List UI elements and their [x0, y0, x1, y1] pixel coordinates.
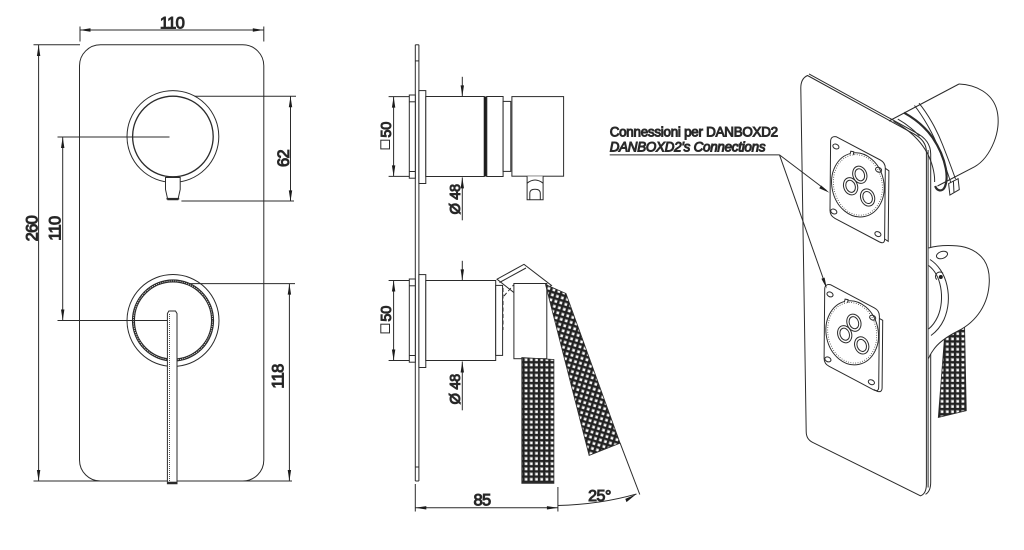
svg-text:118: 118 [270, 364, 288, 389]
svg-text:62: 62 [275, 150, 293, 167]
svg-text:25°: 25° [588, 488, 611, 505]
svg-text:Ø 48: Ø 48 [448, 184, 464, 214]
svg-text:85: 85 [474, 491, 491, 509]
svg-text:50: 50 [379, 306, 395, 322]
svg-text:110: 110 [160, 14, 185, 32]
svg-text:50: 50 [379, 122, 395, 138]
svg-text:260: 260 [24, 215, 42, 241]
svg-text:Ø 48: Ø 48 [448, 374, 464, 404]
svg-text:110: 110 [46, 216, 64, 241]
svg-text:Connessioni per DANBOXD2: Connessioni per DANBOXD2 [610, 125, 778, 140]
svg-text:DANBOXD2's Connections: DANBOXD2's Connections [610, 139, 766, 154]
